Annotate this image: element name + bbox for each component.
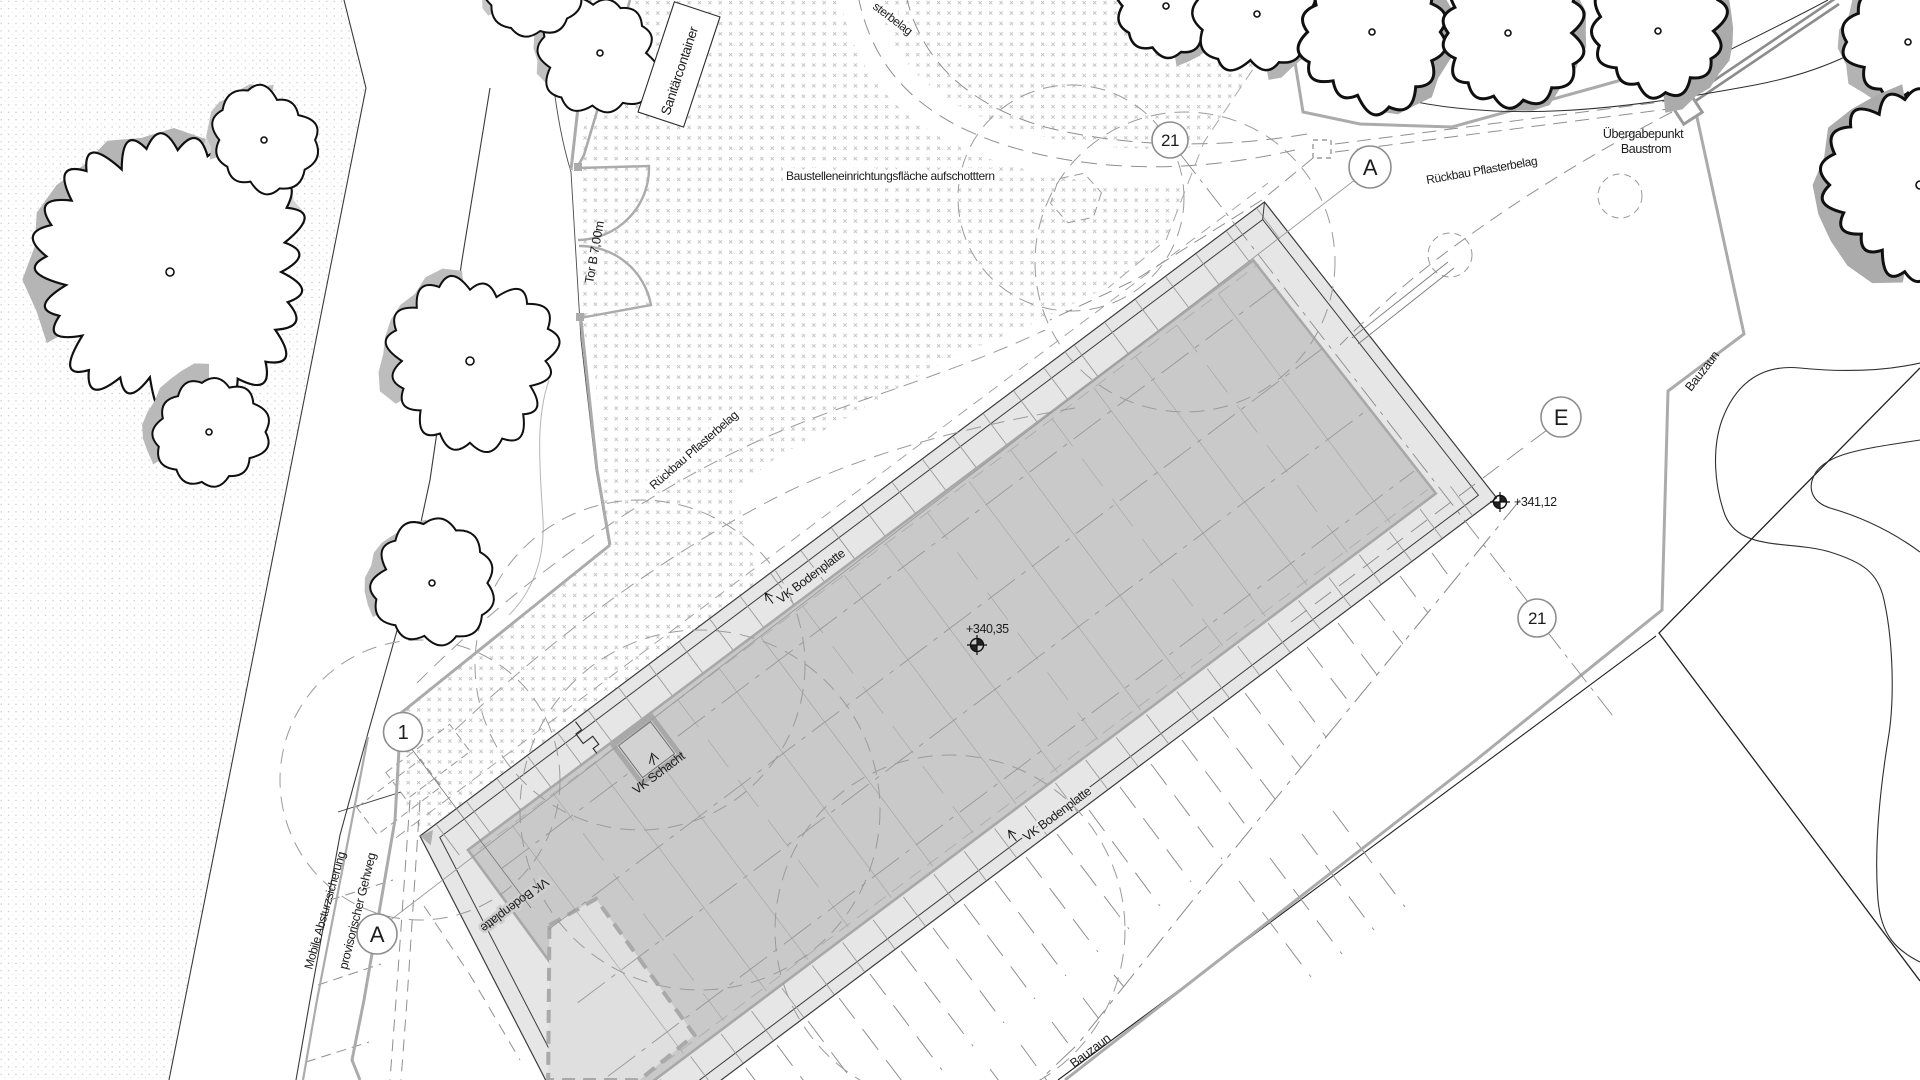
svg-text:1: 1 (398, 722, 409, 744)
svg-text:A: A (370, 922, 385, 947)
svg-text:+341,12: +341,12 (1514, 495, 1557, 509)
svg-text:21: 21 (1161, 131, 1179, 150)
svg-text:Übergabepunkt: Übergabepunkt (1603, 127, 1684, 141)
svg-text:Baustelleneinrichtungsfläche a: Baustelleneinrichtungsfläche aufschottte… (786, 169, 995, 183)
svg-text:Baustrom: Baustrom (1621, 142, 1671, 156)
svg-text:21: 21 (1528, 609, 1546, 628)
svg-text:+340,35: +340,35 (966, 622, 1009, 636)
svg-text:A: A (1363, 155, 1378, 180)
svg-text:E: E (1554, 405, 1568, 430)
